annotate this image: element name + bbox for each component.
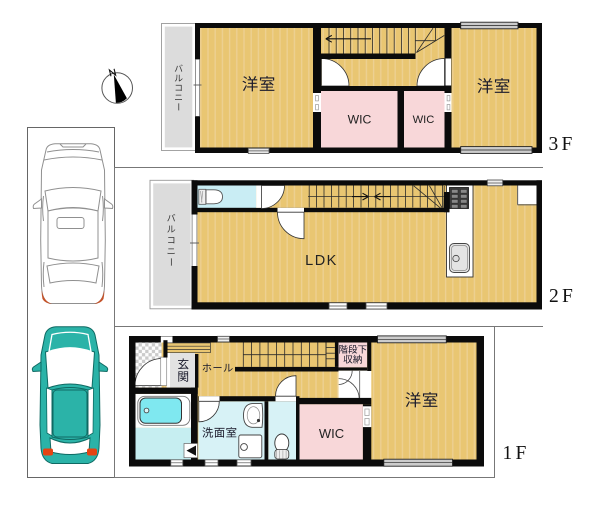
svg-text:3F: 3F (549, 134, 576, 155)
svg-text:WIC: WIC (319, 426, 344, 441)
svg-text:LDK: LDK (305, 253, 338, 269)
svg-text:WIC: WIC (348, 113, 372, 127)
svg-text:WIC: WIC (413, 114, 435, 126)
svg-text:1F: 1F (503, 443, 530, 464)
svg-text:2F: 2F (549, 286, 576, 307)
